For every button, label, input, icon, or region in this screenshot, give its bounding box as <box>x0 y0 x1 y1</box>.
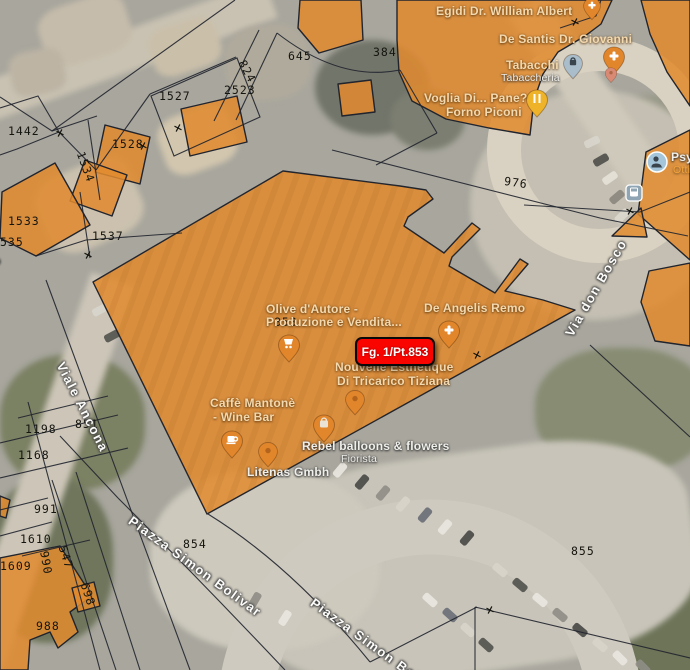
parcel-number-855: 855 <box>571 545 595 557</box>
poi-label-desantis[interactable]: De Santis Dr. Giovanni <box>499 33 632 46</box>
street-label-piazza-simon-bolivar-2: Piazza Simon Bolivar <box>308 596 446 670</box>
parcel-number-1527: 1527 <box>159 90 191 102</box>
parcel-number-384: 384 <box>373 46 397 58</box>
parcel-number-547: 547 <box>57 544 76 570</box>
poi-label-de-angelis-remo[interactable]: De Angelis Remo <box>424 302 525 315</box>
parcel-number-645: 645 <box>288 50 312 62</box>
parcel-number-1533: 1533 <box>8 215 40 227</box>
poi-label-nouvelle-2[interactable]: Di Tricarico Tiziana <box>337 375 450 388</box>
street-label-piazza-simon-bolivar: Piazza Simon Bolivar <box>126 514 264 620</box>
map-canvas[interactable]: 1442824645252315271528153415335351537384… <box>0 0 690 670</box>
parcel-number-1610: 1610 <box>20 533 52 545</box>
parcel-number-1534: 1534 <box>75 150 97 184</box>
parcel-number-1528: 1528 <box>112 138 144 150</box>
selected-parcel-marker[interactable]: Fg. 1/Pt.853 <box>355 337 435 366</box>
poi-label-caffe-mantone-1[interactable]: Caffè Mantonè <box>210 397 295 410</box>
parcel-number-1442: 1442 <box>8 125 40 137</box>
parcel-number-976: 976 <box>503 175 528 190</box>
parcel-number-1609: 1609 <box>0 560 32 572</box>
parcel-number-2523: 2523 <box>224 84 256 96</box>
poi-label-olive-dautore-1[interactable]: Olive d'Autore - <box>266 303 358 316</box>
parcel-number-824: 824 <box>236 58 258 85</box>
parcel-number-1537: 1537 <box>92 230 124 242</box>
poi-label-voglia[interactable]: Voglia Di... Pane? <box>424 92 527 105</box>
poi-label-tabacchi[interactable]: Tabacchi <box>506 59 559 72</box>
poi-label-fiorista[interactable]: Fiorista <box>341 454 377 465</box>
poi-label-psy[interactable]: Psy <box>671 151 690 164</box>
labels-layer: 1442824645252315271528153415335351537384… <box>0 0 690 670</box>
poi-label-rebel-balloons[interactable]: Rebel balloons & flowers <box>302 440 450 453</box>
parcel-number-988: 988 <box>36 620 60 632</box>
parcel-number-991: 991 <box>34 503 58 515</box>
street-label-street-fragment: a <box>0 255 5 269</box>
parcel-number-535: 535 <box>0 236 24 248</box>
poi-label-litenas[interactable]: Litenas Gmbh <box>247 466 329 479</box>
parcel-number-698: 698 <box>79 581 98 607</box>
poi-label-caffe-mantone-2[interactable]: - Wine Bar <box>213 411 274 424</box>
poi-label-tabaccheria[interactable]: Tabaccheria <box>501 73 560 84</box>
poi-label-forno-piconi[interactable]: Forno Piconi <box>446 106 522 119</box>
street-label-viale-ancona: Viale Ancona <box>54 360 111 454</box>
poi-label-egidi[interactable]: Egidi Dr. William Albert <box>436 5 572 18</box>
parcel-number-990: 990 <box>38 550 54 576</box>
parcel-number-1198: 1198 <box>25 423 57 435</box>
parcel-number-854: 854 <box>183 538 207 550</box>
poi-label-olive-dautore-2[interactable]: Produzione e Vendita... <box>266 316 402 329</box>
street-label-via-don-bosco: Via don Bosco <box>563 237 630 339</box>
poi-label-otti[interactable]: Otti <box>673 165 690 176</box>
parcel-number-1168: 1168 <box>18 449 50 461</box>
